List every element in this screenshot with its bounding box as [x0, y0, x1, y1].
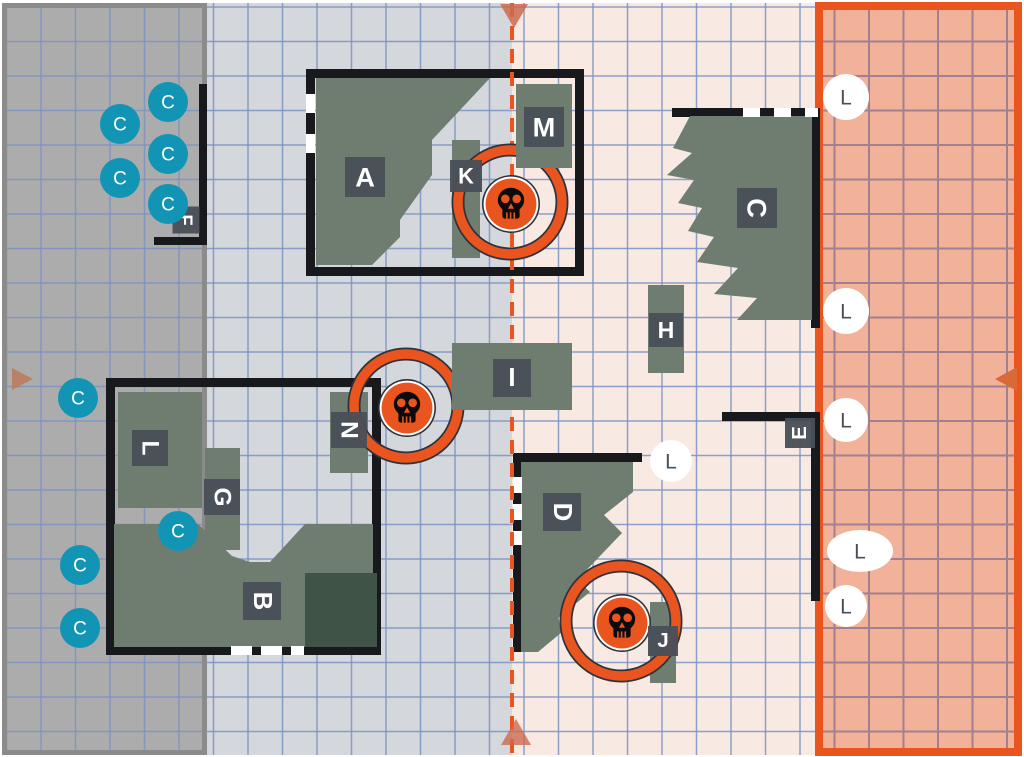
door-marker-6 — [743, 108, 760, 117]
wall-f-right — [199, 84, 207, 245]
unit-marker-letter: C — [113, 115, 127, 136]
door-marker-11 — [513, 531, 522, 545]
wall-c-right — [811, 108, 820, 328]
loot-marker-letter: L — [840, 87, 852, 110]
door-marker-8 — [805, 108, 818, 117]
unit-marker-c-1: C — [148, 82, 188, 122]
door-marker-10 — [513, 504, 522, 520]
loot-marker-l-2: L — [823, 288, 869, 334]
door-marker-3 — [231, 646, 252, 655]
loot-marker-l-5: L — [825, 585, 867, 627]
unit-marker-c-4: C — [100, 158, 140, 198]
terrain-label-a: A — [345, 157, 385, 197]
unit-marker-letter: C — [73, 619, 87, 640]
unit-marker-letter: C — [171, 522, 185, 543]
unit-marker-letter: C — [113, 169, 127, 190]
terrain-label-text: I — [508, 364, 515, 392]
unit-marker-c-6: C — [58, 378, 98, 418]
terrain-label-g: G — [204, 479, 240, 515]
unit-marker-c-2: C — [100, 104, 140, 144]
terrain-label-text: N — [336, 421, 363, 439]
unit-marker-letter: C — [73, 556, 87, 577]
wall-f-bottom — [154, 237, 207, 245]
terrain-label-d: D — [543, 493, 581, 531]
terrain-label-text: B — [248, 592, 276, 611]
loot-marker-letter: L — [854, 541, 866, 564]
door-marker-4 — [261, 646, 282, 655]
loot-marker-letter: L — [665, 451, 677, 474]
terrain-label-n: N — [331, 412, 367, 448]
terrain-label-l: L — [132, 430, 168, 466]
terrain-label-text: K — [458, 164, 474, 189]
terrain-label-i: I — [493, 359, 531, 397]
terrain-label-m: M — [524, 107, 564, 147]
terrain-label-text: J — [657, 630, 668, 652]
loot-marker-l-6: L — [650, 440, 692, 482]
terrain-label-k: K — [450, 160, 482, 192]
unit-marker-c-5: C — [148, 184, 188, 224]
terrain-b-annex — [305, 573, 377, 647]
terrain-label-text: C — [742, 198, 773, 218]
unit-marker-c-7: C — [158, 511, 198, 551]
unit-marker-c-9: C — [60, 608, 100, 648]
terrain-label-text: D — [548, 503, 576, 522]
objective-skull-1 — [482, 175, 540, 233]
unit-marker-letter: C — [71, 389, 85, 410]
unit-marker-letter: C — [161, 93, 175, 114]
terrain-label-h: H — [649, 313, 683, 347]
loot-marker-letter: L — [840, 301, 852, 324]
unit-marker-c-8: C — [60, 545, 100, 585]
terrain-label-text: L — [137, 441, 164, 456]
loot-marker-l-3: L — [824, 398, 868, 442]
terrain-label-text: E — [789, 426, 811, 440]
terrain-label-j: J — [648, 626, 678, 656]
loot-marker-letter: L — [840, 596, 852, 619]
loot-marker-l-4: L — [827, 530, 893, 572]
map-svg: AKMCHINLGBDJEFCCCCCCCCCLLLLLL — [0, 0, 1024, 757]
unit-marker-letter: C — [161, 195, 175, 216]
loot-marker-letter: L — [840, 410, 852, 433]
terrain-label-e: E — [785, 418, 815, 448]
objective-skull-2 — [378, 379, 436, 437]
unit-marker-c-3: C — [148, 134, 188, 174]
unit-marker-letter: C — [161, 145, 175, 166]
door-marker-5 — [291, 646, 304, 655]
objective-skull-3 — [593, 594, 651, 652]
door-marker-1 — [306, 94, 315, 113]
door-marker-7 — [774, 108, 791, 117]
door-marker-9 — [513, 477, 522, 493]
terrain-label-c: C — [737, 188, 777, 228]
terrain-label-text: A — [355, 162, 375, 193]
terrain-label-text: H — [658, 317, 675, 343]
terrain-label-b: B — [243, 582, 281, 620]
door-marker-2 — [306, 134, 315, 153]
scenario-map: AKMCHINLGBDJEFCCCCCCCCCLLLLLL — [0, 0, 1024, 757]
loot-marker-l-1: L — [823, 74, 869, 120]
terrain-label-text: G — [209, 487, 236, 506]
terrain-label-text: M — [533, 112, 556, 143]
wall-d-top — [513, 453, 642, 462]
